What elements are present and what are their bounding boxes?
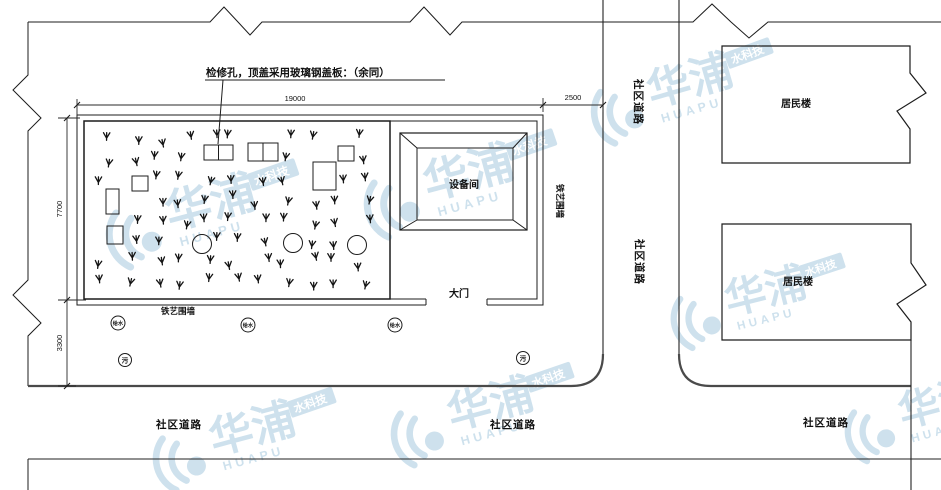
grass-symbol [261, 238, 269, 247]
main-gate-label: 大门 [449, 287, 469, 300]
sewage-well-1: 污 [119, 354, 132, 367]
round-well-2 [284, 234, 303, 253]
building-bottom-label: 居民楼 [783, 275, 813, 288]
grass-symbol [280, 213, 287, 221]
horizontal-road-top-edge-east [679, 354, 911, 386]
inspection-hole-3 [132, 176, 148, 191]
svg-text:污: 污 [520, 354, 527, 363]
grass-symbol [105, 159, 112, 167]
grass-symbol [159, 139, 167, 148]
water-supply-well-1: 给水 [111, 316, 125, 330]
svg-text:给水: 给水 [243, 321, 254, 329]
grass-symbol [265, 254, 272, 262]
grass-symbol [95, 177, 101, 185]
grass-symbol [176, 281, 183, 289]
grass-symbol [285, 197, 293, 206]
grass-symbol [132, 158, 140, 167]
grass-symbol [312, 221, 320, 230]
sewage-well-2: 污 [517, 352, 530, 365]
grass-symbol [160, 216, 167, 224]
grass-symbol [151, 151, 158, 159]
grass-symbol [331, 218, 339, 227]
grass-symbol [312, 252, 320, 261]
grass-symbol [234, 234, 241, 242]
annotation-leader-line [218, 80, 223, 144]
grass-symbol [328, 254, 334, 262]
fence-label-right: 铁艺围墙 [555, 184, 565, 219]
grass-symbol [354, 263, 361, 271]
grass-symbol [263, 214, 270, 222]
grass-symbol [340, 175, 347, 183]
grass-symbol [330, 242, 337, 250]
road-label-vertical-1: 社区道路 [632, 78, 645, 125]
grass-symbol [288, 130, 295, 138]
round-well-3 [348, 236, 367, 255]
road-label-bottom-2: 社区道路 [489, 418, 536, 431]
inspection-hole-7 [313, 162, 336, 190]
grass-symbol [103, 133, 110, 141]
grass-symbol [224, 130, 231, 138]
equipment-room-label: 设备间 [449, 178, 479, 191]
grass-symbol [158, 257, 165, 265]
road-label-bottom-3: 社区道路 [802, 416, 849, 429]
fence-label-bottom: 铁艺围墙 [161, 306, 196, 316]
site-plan-drawing: 华浦 HUAPU 水科技 [0, 0, 941, 490]
grass-symbol [235, 273, 243, 282]
boundary-top-line [28, 4, 941, 38]
dim-line-top [77, 98, 603, 115]
grass-symbol [360, 156, 367, 164]
grass-symbol [356, 129, 363, 137]
building-top [722, 46, 926, 163]
grass-symbol [178, 153, 185, 161]
boundary-left-line [13, 22, 41, 386]
grass-symbol [309, 131, 317, 140]
grass-symbol [308, 241, 315, 249]
dim-site-height: 7700 [55, 201, 64, 218]
inspection-hole-double-2 [248, 143, 278, 161]
grass-symbol [127, 278, 135, 287]
grass-symbol [206, 274, 213, 282]
grass-symbol [153, 171, 160, 179]
grass-symbol [157, 279, 164, 287]
grass-symbol [225, 261, 233, 270]
grass-symbol [187, 131, 194, 139]
grass-symbol [330, 280, 336, 288]
grass-symbol [134, 216, 141, 224]
grass-symbol [331, 196, 338, 204]
grass-symbol [361, 173, 368, 181]
grass-symbol [207, 256, 214, 264]
grass-symbol [313, 201, 320, 209]
road-label-bottom-1: 社区道路 [155, 418, 202, 431]
grass-symbol [175, 254, 182, 262]
grass-symbol [310, 282, 316, 290]
inspection-hole-6 [338, 146, 354, 161]
dim-south-offset: 3300 [55, 335, 64, 352]
building-top-label: 居民楼 [781, 97, 811, 110]
dim-road-offset: 2500 [565, 93, 582, 102]
annotation-text: 检修孔，顶盖采用玻璃钢盖板：（余同） [206, 66, 390, 79]
grass-symbol [175, 171, 183, 180]
grass-symbol [254, 275, 261, 283]
grass-symbol [133, 236, 140, 244]
grass-symbol [277, 260, 284, 268]
svg-text:污: 污 [122, 356, 129, 365]
water-supply-well-2: 给水 [241, 318, 255, 332]
dim-site-width: 19000 [285, 94, 306, 103]
grass-symbol [362, 281, 370, 290]
svg-text:给水: 给水 [113, 319, 124, 327]
grass-symbol [286, 279, 294, 288]
utility-wells: 给水 给水 给水 污 污 [111, 316, 530, 367]
grass-symbol [96, 275, 103, 283]
grass-symbol [94, 260, 101, 268]
inspection-hole-double-1 [204, 145, 233, 160]
svg-text:给水: 给水 [390, 321, 401, 329]
water-supply-well-3: 给水 [388, 318, 402, 332]
grass-symbol [136, 137, 143, 145]
road-label-vertical-2: 社区道路 [633, 238, 646, 285]
